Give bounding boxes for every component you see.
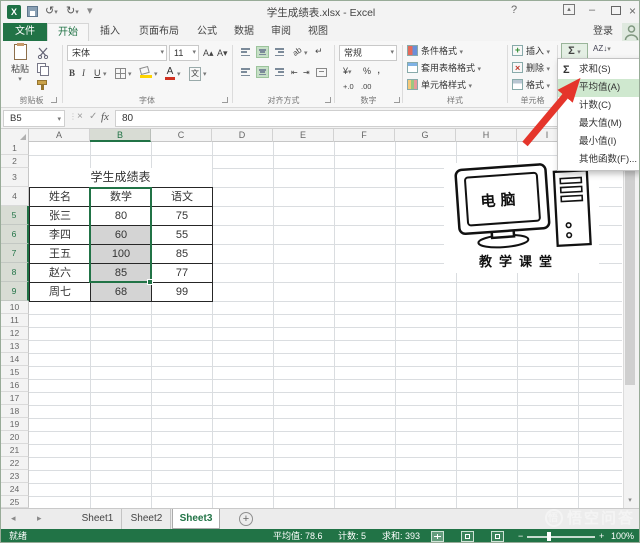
- menu-item-label: 平均值(A): [579, 82, 620, 93]
- tab-3[interactable]: 页面布局: [131, 23, 187, 41]
- format-cells-button[interactable]: 格式 ▾: [512, 78, 550, 93]
- orientation-icon[interactable]: ab: [290, 45, 304, 60]
- gridline-v: [395, 142, 396, 508]
- table-title: 学生成绩表: [29, 168, 212, 187]
- row-header-3[interactable]: 3: [1, 168, 29, 187]
- close-icon[interactable]: ×: [629, 4, 636, 18]
- format-cells-icon: [512, 79, 523, 90]
- tab-7[interactable]: 视图: [301, 23, 335, 41]
- orientation-dropdown-icon[interactable]: ▾: [304, 48, 308, 60]
- bold-button[interactable]: B: [69, 67, 75, 79]
- add-sheet-button[interactable]: +: [239, 512, 253, 526]
- phonetic-dropdown-icon[interactable]: ▾: [203, 69, 207, 81]
- name-box[interactable]: B5▾: [3, 110, 65, 127]
- cell-styles-button[interactable]: 单元格样式 ▾: [407, 78, 472, 93]
- row-header-17[interactable]: 17: [1, 392, 29, 405]
- table-cell-C7[interactable]: 85: [151, 244, 213, 264]
- delete-cells-icon: ×: [512, 62, 523, 73]
- table-header-cell[interactable]: 姓名: [29, 187, 91, 207]
- row-header-9[interactable]: 9: [1, 282, 29, 301]
- column-header-E[interactable]: E: [273, 129, 334, 142]
- status-bar: 就绪 平均值: 78.6 计数: 5 求和: 393 − + 100%: [1, 529, 640, 543]
- excel-window: X ↺▾ ↻▾ ▾ 学生成绩表.xlsx - Excel ? ▴ – × 文件 …: [0, 0, 640, 543]
- font-color-dropdown-icon[interactable]: ▾: [177, 69, 181, 81]
- title-bar: X ↺▾ ↻▾ ▾ 学生成绩表.xlsx - Excel ? ▴ – ×: [1, 1, 640, 23]
- wrap-text-icon[interactable]: ↵: [315, 45, 323, 57]
- gridline-h: [29, 327, 622, 328]
- cells-group-label: 单元格: [508, 95, 557, 106]
- row-header-8[interactable]: 8: [1, 263, 29, 282]
- table-cell-A5[interactable]: 张三: [29, 206, 91, 226]
- column-header-B[interactable]: B: [90, 129, 151, 142]
- gridline-h: [29, 314, 622, 315]
- fill-color-icon[interactable]: [140, 67, 152, 76]
- format-as-table-icon: [407, 62, 418, 73]
- percent-style-icon[interactable]: %: [363, 65, 371, 77]
- gridline-h: [29, 155, 622, 156]
- underline-button[interactable]: U: [94, 67, 101, 79]
- confirm-entry-icon[interactable]: ✓: [89, 111, 97, 122]
- sheet-tab-Sheet2[interactable]: Sheet2: [123, 509, 171, 529]
- menu-item-label: 最小值(I): [579, 136, 616, 147]
- autosum-menu-item-2[interactable]: 平均值(A): [558, 79, 640, 97]
- row-header-20[interactable]: 20: [1, 431, 29, 444]
- comma-style-icon[interactable]: ,: [377, 63, 380, 75]
- conditional-formatting-icon: [407, 45, 418, 56]
- help-icon[interactable]: ?: [511, 4, 517, 16]
- shrink-font-icon[interactable]: A▾: [217, 47, 228, 59]
- gridline-h: [29, 353, 622, 354]
- cut-icon[interactable]: [37, 47, 49, 59]
- prev-sheet-icon[interactable]: ◂: [11, 513, 16, 524]
- gridline-h: [29, 340, 622, 341]
- increase-decimal-icon[interactable]: +.0: [343, 81, 354, 93]
- tab-6[interactable]: 审阅: [263, 23, 299, 41]
- row-header-16[interactable]: 16: [1, 379, 29, 392]
- gridline-h: [29, 418, 622, 419]
- copy-icon[interactable]: [37, 63, 46, 73]
- column-header-G[interactable]: G: [395, 129, 456, 142]
- row-header-1[interactable]: 1: [1, 142, 29, 155]
- row-header-19[interactable]: 19: [1, 418, 29, 431]
- table-cell-A7[interactable]: 王五: [29, 244, 91, 264]
- picture-caption: 教学课堂: [444, 251, 594, 270]
- formula-bar-divider: ⋮: [69, 112, 77, 121]
- gridline-h: [29, 457, 622, 458]
- autosum-button[interactable]: Σ ▾: [561, 43, 588, 59]
- gridline-v: [273, 142, 274, 508]
- autosum-menu: Σ求和(S)平均值(A)计数(C)最大值(M)最小值(I)其他函数(F)...: [557, 58, 640, 171]
- row-header-22[interactable]: 22: [1, 457, 29, 470]
- fill-color-dropdown-icon[interactable]: ▾: [154, 69, 158, 81]
- scroll-down-icon[interactable]: ▾: [623, 494, 637, 508]
- gridline-h: [29, 379, 622, 380]
- font-dialog-launcher-icon[interactable]: [222, 97, 228, 103]
- status-count: 计数: 5: [338, 529, 366, 543]
- gridline-v: [334, 142, 335, 508]
- conditional-formatting-button[interactable]: 条件格式 ▾: [407, 44, 463, 59]
- row-header-24[interactable]: 24: [1, 483, 29, 496]
- watermark-logo-icon: 悟: [545, 509, 563, 527]
- table-header-cell[interactable]: 数学: [90, 187, 152, 207]
- embedded-picture[interactable]: 电脑 教学课堂: [444, 163, 599, 273]
- table-cell-C6[interactable]: 55: [151, 225, 213, 245]
- format-as-table-button[interactable]: 套用表格格式 ▾: [407, 61, 481, 76]
- row-header-6[interactable]: 6: [1, 225, 29, 244]
- ready-status: 就绪: [9, 529, 27, 543]
- status-sum: 求和: 393: [382, 529, 420, 543]
- maximize-icon[interactable]: [611, 6, 621, 15]
- italic-button[interactable]: I: [82, 67, 85, 79]
- page-break-view-icon[interactable]: [491, 531, 504, 542]
- accounting-format-icon[interactable]: ¥▾: [343, 65, 352, 79]
- menu-item-label: 其他函数(F)...: [579, 154, 637, 165]
- watermark: 悟 悟空问答: [545, 507, 635, 528]
- gridline-h: [29, 431, 622, 432]
- column-header-C[interactable]: C: [151, 129, 212, 142]
- table-cell-A6[interactable]: 李四: [29, 225, 91, 245]
- ribbon-tab-row: 文件 开始插入页面布局公式数据审阅视图 登录: [1, 23, 640, 41]
- align-right-icon[interactable]: [273, 66, 286, 78]
- sheet-tab-Sheet1[interactable]: Sheet1: [74, 509, 122, 529]
- middle-align-icon[interactable]: [256, 46, 269, 58]
- gridline-h: [29, 405, 622, 406]
- table-cell-C8[interactable]: 77: [151, 263, 213, 283]
- insert-function-icon[interactable]: fx: [101, 111, 109, 123]
- menu-item-label: 计数(C): [579, 100, 611, 111]
- row-header-11[interactable]: 11: [1, 314, 29, 327]
- menu-item-label: 最大值(M): [579, 118, 622, 129]
- ribbon: 粘贴 ▾ 剪贴板 宋体▾ 11▾ A▴ A▾ B I U ▾ ▾ ▾ A ▾ 文…: [1, 41, 640, 108]
- autosum-menu-item-6[interactable]: 其他函数(F)...: [558, 151, 640, 169]
- table-cell-A9[interactable]: 周七: [29, 282, 91, 302]
- align-left-icon[interactable]: [239, 66, 252, 78]
- minimize-icon[interactable]: –: [589, 4, 595, 16]
- decrease-indent-icon[interactable]: ⇤: [291, 67, 298, 79]
- font-color-icon[interactable]: A: [165, 66, 175, 80]
- cancel-entry-icon[interactable]: ×: [77, 111, 83, 122]
- row-header-13[interactable]: 13: [1, 340, 29, 353]
- table-cell-B6[interactable]: 60: [90, 225, 152, 245]
- styles-group-label: 样式: [403, 95, 507, 106]
- status-average: 平均值: 78.6: [273, 529, 323, 543]
- format-painter-icon[interactable]: [37, 80, 47, 85]
- table-cell-A8[interactable]: 赵六: [29, 263, 91, 283]
- column-header-F[interactable]: F: [334, 129, 395, 142]
- autosum-menu-item-3[interactable]: 计数(C): [558, 97, 640, 115]
- decrease-decimal-icon[interactable]: .00: [361, 81, 371, 93]
- font-size-combo[interactable]: 11▾: [169, 45, 199, 61]
- row-header-14[interactable]: 14: [1, 353, 29, 366]
- row-header-18[interactable]: 18: [1, 405, 29, 418]
- font-group-label: 字体: [63, 95, 231, 106]
- table-cell-B8[interactable]: 85: [90, 263, 152, 283]
- align-center-icon[interactable]: [256, 66, 269, 78]
- row-header-21[interactable]: 21: [1, 444, 29, 457]
- zoom-slider-thumb[interactable]: [547, 532, 551, 541]
- increase-indent-icon[interactable]: ⇥: [303, 67, 310, 79]
- tab-5[interactable]: 数据: [227, 23, 261, 41]
- vertical-scrollbar-thumb[interactable]: [625, 145, 635, 385]
- grow-font-icon[interactable]: A▴: [203, 47, 214, 59]
- zoom-out-icon[interactable]: −: [518, 529, 523, 543]
- number-format-combo[interactable]: 常规▾: [339, 45, 397, 61]
- font-name-combo[interactable]: 宋体▾: [67, 45, 167, 61]
- row-header-7[interactable]: 7: [1, 244, 29, 263]
- sort-filter-icon[interactable]: AZ↓▾: [593, 44, 611, 53]
- row-header-10[interactable]: 10: [1, 301, 29, 314]
- computer-drawing: 电脑: [444, 163, 599, 251]
- column-header-D[interactable]: D: [212, 129, 273, 142]
- select-all-corner[interactable]: [1, 129, 29, 142]
- underline-dropdown-icon[interactable]: ▾: [103, 69, 107, 81]
- cell-styles-icon: [407, 79, 418, 90]
- formula-bar: B5▾ ⋮ × ✓ fx 80: [1, 108, 640, 129]
- select-all-triangle-icon: [20, 134, 26, 140]
- row-header-5[interactable]: 5: [1, 206, 29, 225]
- row-header-25[interactable]: 25: [1, 496, 29, 508]
- sheet-tab-Sheet3[interactable]: Sheet3: [172, 509, 220, 529]
- column-header-A[interactable]: A: [29, 129, 90, 142]
- autosum-menu-item-1[interactable]: Σ求和(S): [558, 61, 640, 79]
- row-header-12[interactable]: 12: [1, 327, 29, 340]
- picture-screen-text: 电脑: [480, 190, 521, 211]
- delete-cells-button[interactable]: ×删除 ▾: [512, 61, 550, 76]
- sigma-icon: Σ: [563, 61, 570, 79]
- zoom-in-icon[interactable]: +: [599, 529, 604, 543]
- column-header-H[interactable]: H: [456, 129, 517, 142]
- insert-cells-icon: +: [512, 45, 523, 56]
- zoom-level[interactable]: 100%: [611, 529, 634, 543]
- table-header-cell[interactable]: 语文: [151, 187, 213, 207]
- insert-cells-button[interactable]: +插入 ▾: [512, 44, 550, 59]
- clipboard-dialog-launcher-icon[interactable]: [51, 97, 57, 103]
- borders-icon[interactable]: [115, 68, 126, 79]
- autosum-menu-item-5[interactable]: 最小值(I): [558, 133, 640, 151]
- gridline-h: [29, 470, 622, 471]
- selection-fill-handle[interactable]: [147, 279, 153, 285]
- gridline-h: [29, 392, 622, 393]
- sign-in-button[interactable]: 登录: [586, 23, 620, 41]
- number-dialog-launcher-icon[interactable]: [394, 97, 400, 103]
- phonetic-guide-icon[interactable]: 文: [189, 67, 201, 81]
- clipboard-icon: [14, 44, 27, 60]
- gridline-h: [29, 366, 622, 367]
- gridline-h: [29, 496, 622, 497]
- row-header-23[interactable]: 23: [1, 470, 29, 483]
- bottom-align-icon[interactable]: [273, 46, 286, 58]
- row-header-15[interactable]: 15: [1, 366, 29, 379]
- table-cell-B7[interactable]: 100: [90, 244, 152, 264]
- tab-2[interactable]: 插入: [91, 23, 129, 41]
- avatar[interactable]: [622, 23, 640, 41]
- row-header-2[interactable]: 2: [1, 155, 29, 168]
- table-cell-B5[interactable]: 80: [90, 206, 152, 226]
- tab-file[interactable]: 文件: [3, 23, 47, 41]
- top-align-icon[interactable]: [239, 46, 252, 58]
- table-cell-C9[interactable]: 99: [151, 282, 213, 302]
- autosum-menu-item-4[interactable]: 最大值(M): [558, 115, 640, 133]
- person-icon: [622, 23, 640, 41]
- window-title: 学生成绩表.xlsx - Excel: [1, 5, 640, 20]
- number-group-label: 数字: [335, 95, 402, 106]
- page-layout-view-icon[interactable]: [461, 531, 474, 542]
- zoom-slider-track[interactable]: [527, 536, 595, 538]
- alignment-dialog-launcher-icon[interactable]: [325, 97, 331, 103]
- borders-dropdown-icon[interactable]: ▾: [128, 69, 132, 81]
- normal-view-icon[interactable]: [431, 531, 444, 542]
- row-header-4[interactable]: 4: [1, 187, 29, 206]
- alignment-group-label: 对齐方式: [233, 95, 334, 106]
- paste-button[interactable]: 粘贴 ▾: [7, 44, 33, 92]
- table-cell-C5[interactable]: 75: [151, 206, 213, 226]
- tab-active[interactable]: 开始: [47, 23, 89, 41]
- tab-4[interactable]: 公式: [189, 23, 225, 41]
- merge-center-icon[interactable]: [316, 68, 327, 77]
- next-sheet-icon[interactable]: ▸: [37, 513, 42, 524]
- menu-item-label: 求和(S): [579, 64, 611, 75]
- table-cell-B9[interactable]: 68: [90, 282, 152, 302]
- gridline-h: [29, 483, 622, 484]
- gridline-h: [29, 444, 622, 445]
- ribbon-options-icon[interactable]: ▴: [563, 4, 575, 15]
